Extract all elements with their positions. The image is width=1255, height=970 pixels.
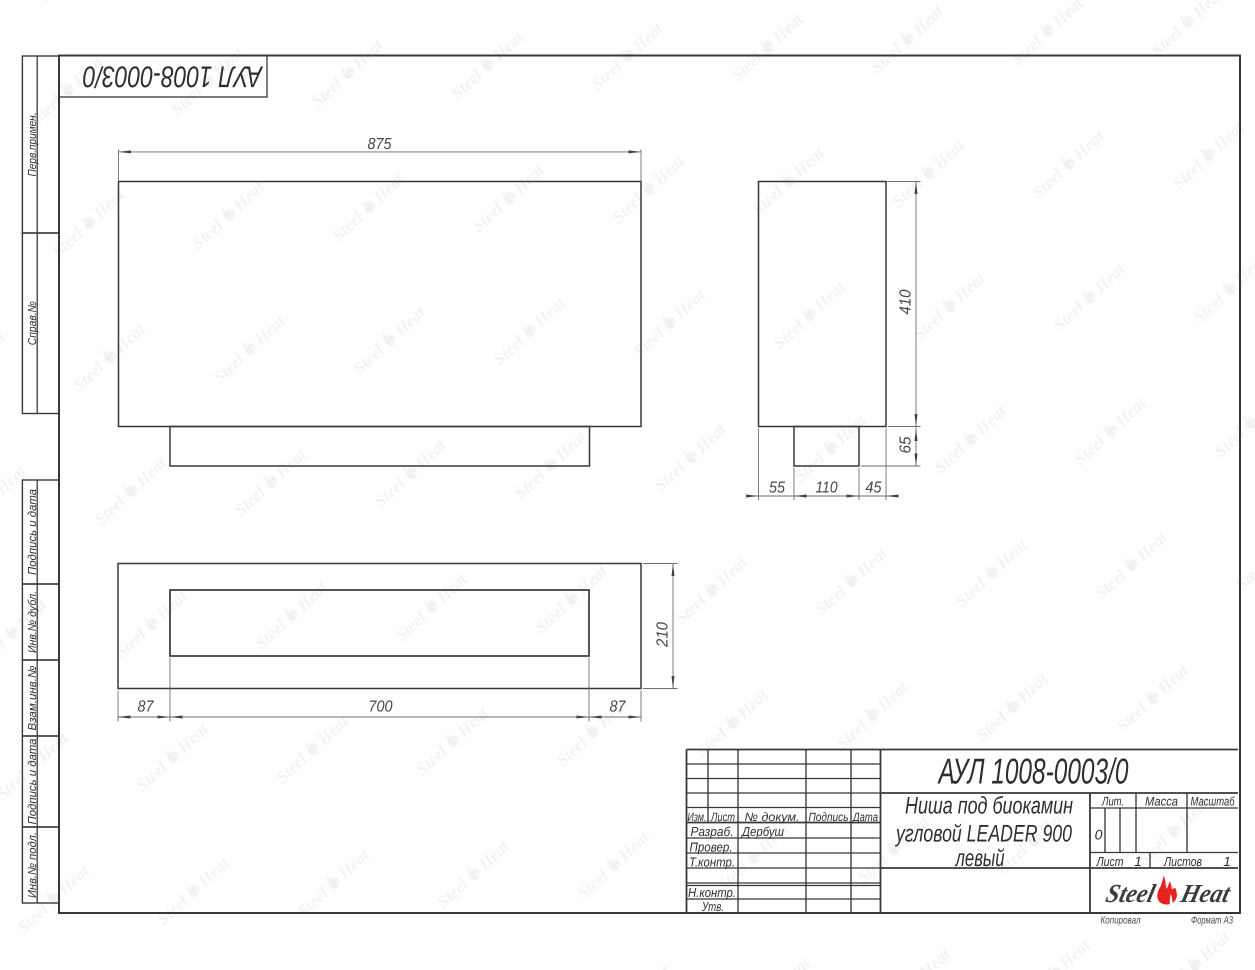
svg-text:110: 110 [816, 480, 838, 497]
svg-text:Steel: Steel [0, 0, 34, 4]
svg-text:Heat: Heat [55, 0, 91, 4]
svg-text:АУЛ 1008-0003/0: АУЛ 1008-0003/0 [83, 60, 264, 93]
svg-text:55: 55 [769, 480, 785, 497]
svg-text:Копировал: Копировал [1101, 915, 1141, 927]
svg-text:Листов: Листов [1163, 854, 1202, 869]
svg-text:Подпись: Подпись [809, 810, 849, 824]
svg-text:Лист: Лист [710, 810, 735, 824]
svg-text:Лит.: Лит. [1101, 795, 1124, 809]
svg-text:87: 87 [138, 699, 155, 716]
svg-text:Формат А3: Формат А3 [1191, 915, 1233, 927]
svg-text:Подпись и дата: Подпись и дата [27, 489, 39, 575]
svg-text:45: 45 [866, 480, 882, 497]
svg-text:Масштаб: Масштаб [1191, 795, 1236, 809]
svg-text:Подпись и дата: Подпись и дата [27, 739, 39, 825]
svg-text:Heat: Heat [1177, 879, 1234, 908]
svg-text:0: 0 [1095, 827, 1103, 843]
svg-text:65: 65 [898, 436, 915, 453]
svg-text:Ниша под биокамин: Ниша под биокамин [905, 793, 1073, 820]
svg-text:Н.контр.: Н.контр. [688, 885, 736, 900]
svg-text:Взам.инв.№: Взам.инв.№ [27, 665, 39, 731]
svg-text:875: 875 [368, 136, 392, 153]
svg-text:Лист: Лист [1096, 854, 1124, 869]
svg-text:№ докум.: № докум. [745, 810, 800, 824]
svg-text:Инв.№ подл.: Инв.№ подл. [27, 832, 39, 898]
svg-text:87: 87 [610, 699, 627, 716]
svg-text:угловой LEADER 900: угловой LEADER 900 [895, 821, 1073, 848]
svg-text:Масса: Масса [1145, 795, 1178, 809]
svg-text:1: 1 [1223, 854, 1231, 869]
svg-text:Разраб.: Разраб. [691, 824, 734, 839]
svg-text:Steel: Steel [1103, 879, 1159, 908]
svg-text:Т.контр.: Т.контр. [689, 855, 735, 870]
svg-text:Инв.№ дубл.: Инв.№ дубл. [27, 591, 39, 653]
svg-text:Изм.: Изм. [688, 810, 707, 824]
svg-text:Дербуш: Дербуш [740, 824, 784, 839]
svg-text:левый: левый [954, 845, 1004, 872]
svg-text:210: 210 [655, 622, 672, 648]
svg-text:Дата: Дата [851, 810, 878, 824]
svg-text:Провер.: Провер. [690, 840, 733, 855]
svg-text:АУЛ 1008-0003/0: АУЛ 1008-0003/0 [937, 751, 1128, 792]
svg-text:Утв.: Утв. [701, 899, 724, 914]
svg-text:700: 700 [369, 699, 393, 716]
svg-text:410: 410 [898, 289, 915, 314]
svg-text:Перв.примен.: Перв.примен. [27, 113, 39, 177]
svg-text:1: 1 [1134, 854, 1142, 869]
svg-text:Справ.№: Справ.№ [27, 301, 39, 345]
